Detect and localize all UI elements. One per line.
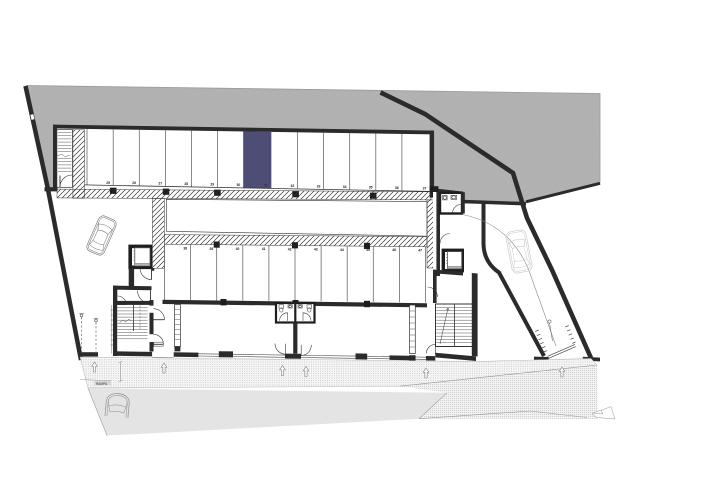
svg-text:41: 41 (262, 247, 266, 251)
svg-text:32: 32 (291, 184, 295, 188)
svg-text:31: 31 (264, 184, 268, 188)
svg-text:27: 27 (158, 182, 162, 186)
svg-text:33: 33 (317, 185, 321, 189)
svg-text:30: 30 (237, 183, 241, 187)
svg-text:29: 29 (210, 183, 214, 187)
svg-text:40: 40 (236, 247, 240, 251)
svg-text:36: 36 (395, 186, 399, 190)
svg-text:34: 34 (343, 185, 347, 189)
svg-text:43: 43 (314, 248, 318, 252)
svg-text:46: 46 (392, 248, 396, 252)
svg-text:37: 37 (423, 187, 427, 191)
svg-text:35: 35 (369, 186, 373, 190)
svg-text:26: 26 (132, 181, 136, 185)
svg-text:44: 44 (340, 248, 344, 252)
svg-text:38: 38 (183, 247, 187, 251)
svg-text:25: 25 (106, 181, 110, 185)
svg-text:RAMPA: RAMPA (96, 382, 108, 386)
svg-text:47: 47 (418, 248, 422, 252)
svg-text:42: 42 (288, 247, 292, 251)
svg-text:28: 28 (184, 182, 188, 186)
svg-text:39: 39 (210, 247, 214, 251)
